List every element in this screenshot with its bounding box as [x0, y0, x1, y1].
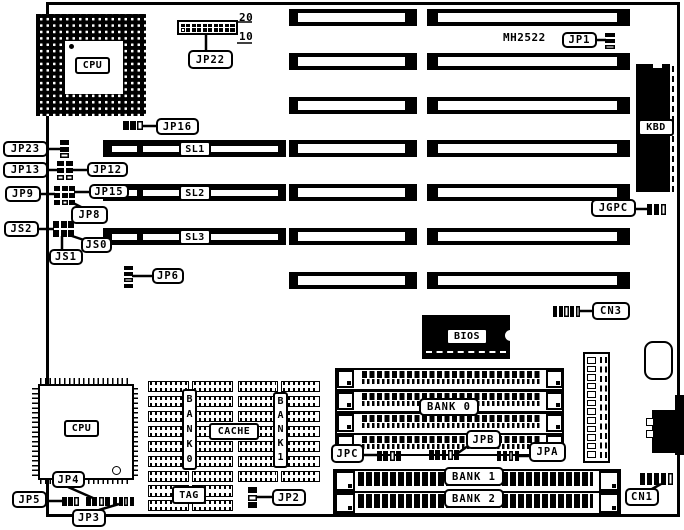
- jpa-jumper: [497, 451, 519, 461]
- simm-clip: [337, 392, 354, 410]
- jumper-label-jp1: JP1: [562, 32, 597, 48]
- connector-label-cn3: CN3: [592, 302, 630, 320]
- jp4-jumper: [86, 497, 110, 506]
- simm-module: [362, 415, 540, 428]
- jumper-label-jp22: JP22: [188, 50, 233, 69]
- simm-clip: [337, 370, 354, 388]
- cache-label: CACHE: [209, 423, 259, 440]
- slot-bar: [289, 184, 417, 201]
- jp13-jp12-jumper-block: [57, 161, 73, 180]
- jumper-label-jpc: JPC: [331, 444, 364, 463]
- jp2-jumper: [248, 487, 257, 508]
- jumper-label-jp15: JP15: [89, 184, 129, 199]
- jumper-label-jp4: JP4: [52, 471, 85, 488]
- jumper-label-jpb: JPB: [466, 430, 501, 449]
- slot-bar: [427, 97, 630, 114]
- simm-module: [362, 436, 540, 449]
- din-connector-body: [652, 410, 684, 453]
- simm-clip: [335, 493, 355, 513]
- simm-clip: [337, 414, 354, 432]
- simm-clip: [546, 414, 563, 432]
- bios-notch: [505, 330, 516, 341]
- jumper-label-jgpc: JGPC: [591, 199, 636, 217]
- slot-bar: [427, 53, 630, 70]
- jp1-jumper: [605, 33, 615, 49]
- din-connector-pin1: [646, 418, 654, 426]
- jp3-jumper: [113, 497, 134, 506]
- jumper-label-jp12: JP12: [87, 162, 128, 177]
- jumper-label-jp8: JP8: [71, 206, 108, 224]
- jumper-label-jpa: JPA: [529, 442, 566, 462]
- slot-bar: [289, 53, 417, 70]
- bank0-label: BANK 0: [419, 398, 479, 416]
- jumper-label-jp9: JP9: [5, 186, 41, 202]
- slot-label-sl1: SL1: [179, 141, 211, 157]
- motherboard-diagram: CPU 20 10 JP22 JP16 JP23 JP13 JP12 JP9 J…: [0, 0, 684, 530]
- kbd-notch: [653, 64, 662, 68]
- cn3-connector: [553, 306, 580, 317]
- battery-outline: [644, 341, 673, 380]
- jpb-jumper: [429, 450, 459, 460]
- slot-bar: [289, 9, 417, 26]
- jp5-jumper: [62, 497, 79, 506]
- jumper-label-jp5: JP5: [12, 491, 47, 508]
- power-connector-key-line1: [600, 357, 602, 458]
- chip-marking-text: MH2522: [503, 31, 546, 44]
- jumper-label-jp13: JP13: [3, 162, 48, 178]
- slot-bar: [427, 272, 630, 289]
- slot-bar: [427, 9, 630, 26]
- jumper-label-js0: JS0: [81, 237, 112, 253]
- jumper-label-jp3: JP3: [72, 509, 106, 527]
- jp22-header: [177, 20, 238, 35]
- bank2-label: BANK 2: [444, 489, 504, 508]
- cache-bank1-label: BANK1: [273, 392, 288, 468]
- jp6-jumper: [124, 266, 133, 288]
- power-connector: [583, 352, 610, 463]
- jumper-label-jp6: JP6: [152, 268, 184, 284]
- tag-label: TAG: [172, 486, 206, 504]
- jpc-jumper: [377, 451, 401, 461]
- simm-clip: [546, 392, 563, 410]
- jp22-pin10-number: 10: [239, 30, 253, 43]
- cpu-qfp-pin1-circle: [112, 466, 121, 475]
- jp22-pin20-number: 20: [239, 11, 253, 24]
- slot-label-sl2: SL2: [179, 185, 211, 201]
- jgpc-jumper: [647, 204, 666, 215]
- slot-bar: [289, 228, 417, 245]
- jumper-label-jp23: JP23: [3, 141, 48, 157]
- simm-clip: [599, 493, 619, 513]
- cpu-chip-label: CPU: [64, 420, 99, 437]
- bios-label: BIOS: [446, 328, 488, 345]
- connector-label-cn1: CN1: [625, 488, 659, 506]
- cpu-pin1-dot: [69, 44, 74, 49]
- kbd-label: KBD: [638, 119, 674, 136]
- slot-bar: [289, 272, 417, 289]
- slot-label-sl3: SL3: [179, 229, 211, 245]
- power-connector-key-line2: [605, 357, 607, 458]
- cache-bank0-label: BANK0: [182, 389, 197, 470]
- jp9-jp15-jp8-jumper-block: [54, 186, 75, 205]
- jumper-label-jp2: JP2: [272, 489, 306, 506]
- simm-clip: [335, 471, 355, 491]
- simm-clip: [546, 370, 563, 388]
- cn1-connector: [640, 473, 673, 485]
- power-connector-pins: [587, 357, 596, 458]
- jp16-jumper: [123, 121, 143, 130]
- bios-dashed-line: [426, 351, 506, 353]
- simm-clip: [599, 471, 619, 491]
- slot-bar: [289, 97, 417, 114]
- simm-module: [362, 371, 540, 384]
- cpu-socket-label: CPU: [75, 57, 110, 74]
- slot-bar: [427, 140, 630, 157]
- jumper-label-js2: JS2: [4, 221, 39, 237]
- din-connector-pin2: [646, 430, 654, 438]
- jumper-label-jp16: JP16: [156, 118, 199, 135]
- slot-bar: [427, 228, 630, 245]
- jumper-label-js1: JS1: [49, 249, 83, 265]
- slot-bar: [289, 140, 417, 157]
- jp23-jumper: [60, 140, 69, 158]
- js2-js1-js0-jumper-block: [53, 221, 74, 237]
- bank1-label: BANK 1: [444, 467, 504, 486]
